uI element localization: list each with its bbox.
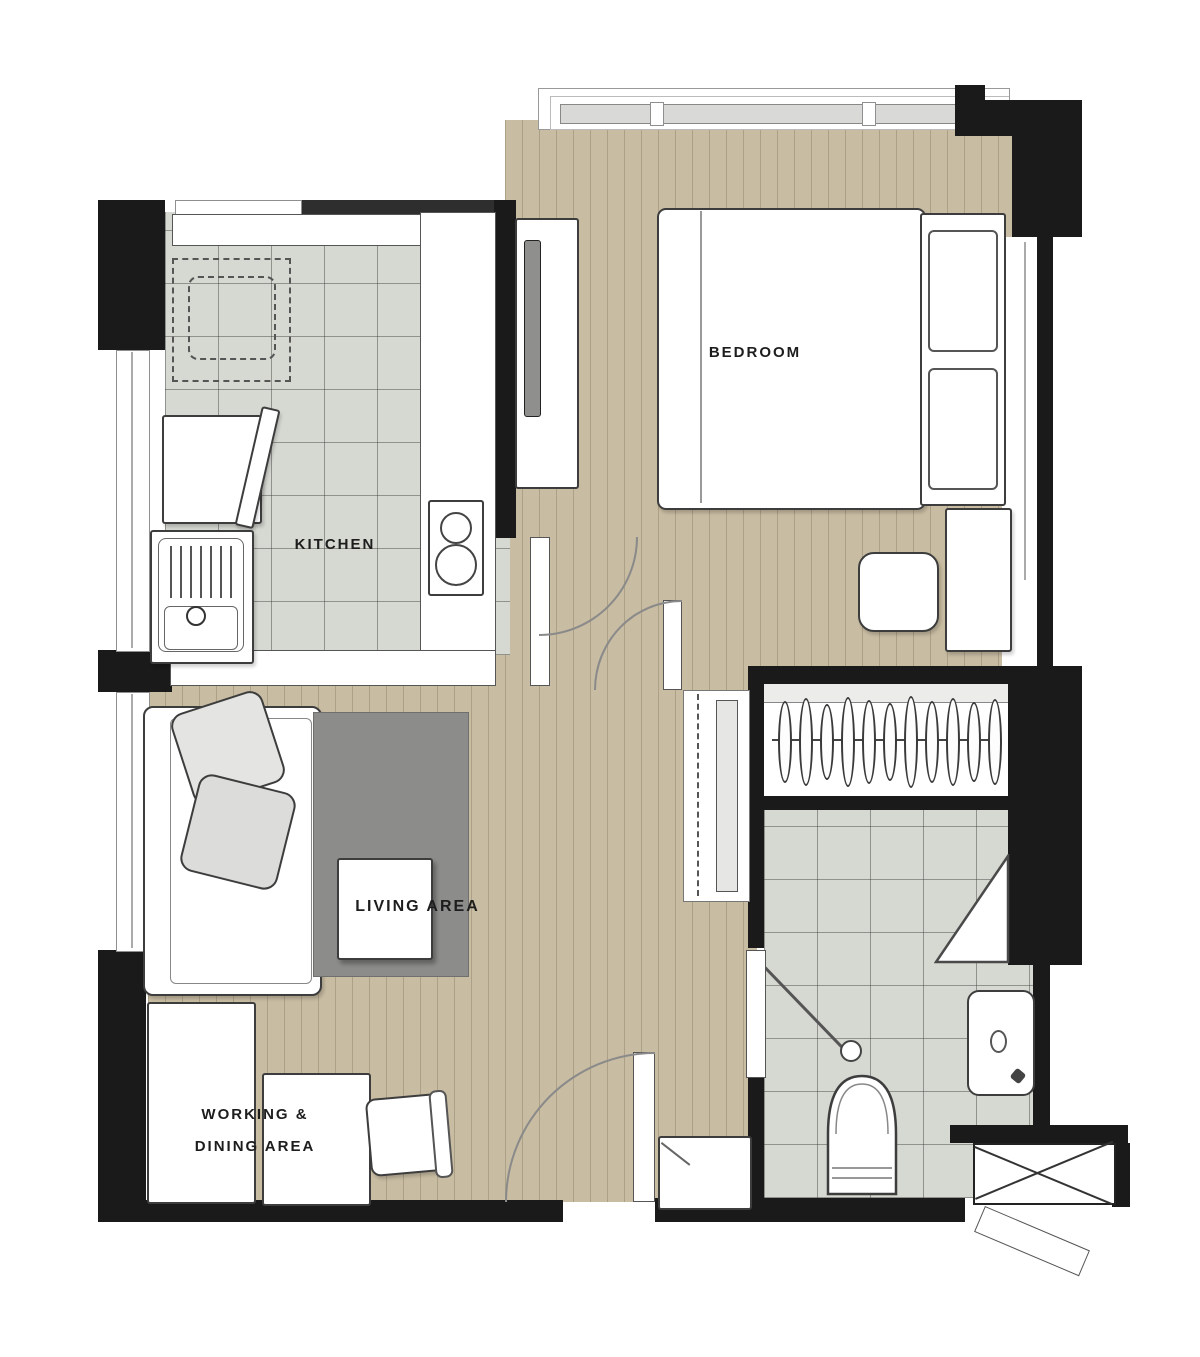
wall-segment bbox=[955, 100, 1082, 136]
washer-dashed-inner bbox=[188, 276, 276, 360]
hanger bbox=[904, 696, 918, 788]
hanger bbox=[862, 700, 876, 784]
kitchen-counter-top bbox=[172, 214, 424, 246]
hanger bbox=[925, 701, 939, 783]
shower-head bbox=[840, 1040, 862, 1062]
shower-door-glass bbox=[934, 854, 1012, 966]
vanity-drain bbox=[990, 1030, 1007, 1053]
toilet bbox=[822, 1070, 902, 1200]
hanger bbox=[820, 704, 834, 780]
hanger bbox=[778, 701, 792, 783]
living-area-label: LIVING AREA bbox=[330, 898, 505, 916]
work-desk bbox=[147, 1002, 256, 1204]
pillow bbox=[928, 230, 998, 352]
sink-drain-line bbox=[170, 546, 172, 598]
sink-drain-line bbox=[190, 546, 192, 598]
hanger bbox=[946, 698, 960, 786]
hanger bbox=[988, 699, 1002, 785]
wall-top-right-pillar bbox=[1012, 136, 1082, 237]
balcony-window-mullion bbox=[862, 102, 876, 126]
hanger bbox=[841, 697, 855, 787]
sink-drain-line bbox=[220, 546, 222, 598]
wall-right-mid-pillar bbox=[1008, 684, 1082, 965]
pillow bbox=[928, 368, 998, 490]
sliding-door-dash bbox=[697, 694, 699, 896]
wall-bath-right bbox=[1033, 965, 1050, 1128]
bedroom-label: BEDROOM bbox=[660, 344, 850, 361]
sink-drain-line bbox=[230, 546, 232, 598]
bedroom-window-line bbox=[1024, 242, 1026, 580]
hanger bbox=[883, 703, 897, 781]
stove-burner-small bbox=[440, 512, 472, 544]
hanger bbox=[799, 698, 813, 786]
wall-right-thin bbox=[1037, 237, 1053, 667]
tv bbox=[524, 240, 541, 417]
working-dining-label-line2: DINING AREA bbox=[150, 1138, 360, 1155]
wall-bath-top bbox=[748, 796, 1035, 810]
balcony-window-mullion bbox=[650, 102, 664, 126]
wall-wardrobe-top bbox=[748, 666, 1082, 684]
wall-segment bbox=[98, 200, 165, 350]
window-glass-line bbox=[131, 694, 133, 948]
wall-tv bbox=[494, 200, 516, 538]
wall-wardrobe-left bbox=[748, 684, 764, 796]
sink-drain-line bbox=[180, 546, 182, 598]
shoe-cabinet bbox=[658, 1136, 752, 1210]
sliding-door-leaf bbox=[716, 700, 738, 892]
wardrobe-shelf-band bbox=[764, 684, 1008, 703]
sink-drain-line bbox=[200, 546, 202, 598]
wall-bath-left-upper bbox=[748, 810, 764, 948]
wall-segment bbox=[98, 950, 146, 1222]
hanger bbox=[967, 702, 981, 782]
floor-plan: KITCHEN BEDROOM bbox=[0, 0, 1200, 1357]
exterior-door-leaf bbox=[974, 1206, 1090, 1276]
stove-burner-large bbox=[435, 544, 477, 586]
working-dining-label-line1: WORKING & bbox=[150, 1106, 360, 1123]
bedroom-ottoman bbox=[858, 552, 939, 632]
bedroom-bench bbox=[945, 508, 1012, 652]
sink-drain-line bbox=[210, 546, 212, 598]
wall-shaft-top bbox=[950, 1125, 1128, 1143]
sink-faucet bbox=[186, 606, 206, 626]
window-glass-line bbox=[131, 352, 133, 648]
kitchen-label: KITCHEN bbox=[245, 536, 425, 553]
bathroom-door-leaf bbox=[746, 950, 766, 1078]
balcony-window bbox=[560, 104, 1008, 124]
kitchen-side-window bbox=[116, 350, 150, 652]
